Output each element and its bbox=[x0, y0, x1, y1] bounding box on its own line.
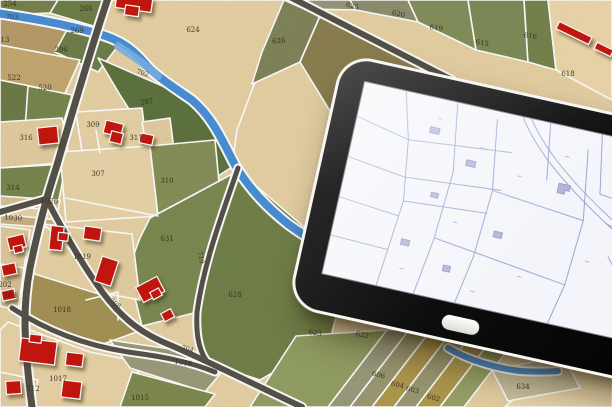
home-button bbox=[440, 313, 480, 336]
cadastral-map-photo: 2542667032692966247022876256206196156166… bbox=[0, 0, 612, 407]
